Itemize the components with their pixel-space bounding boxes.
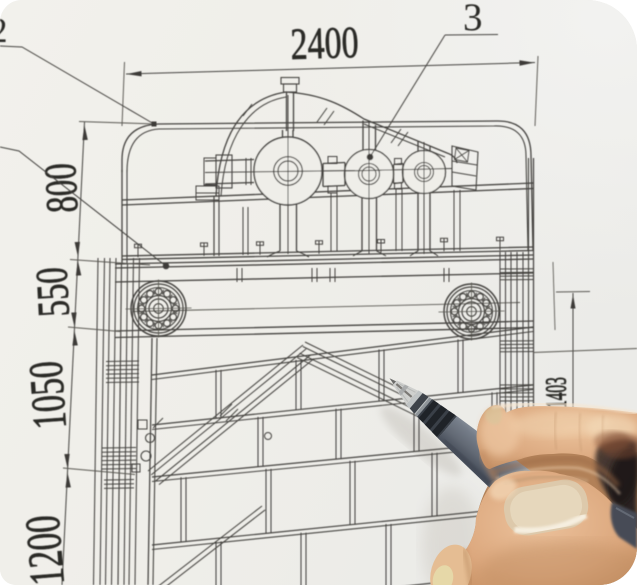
svg-text:2: 2 xyxy=(0,11,8,50)
svg-text:1050: 1050 xyxy=(20,359,78,431)
svg-text:3: 3 xyxy=(463,0,483,39)
svg-text:1200: 1200 xyxy=(16,513,76,585)
svg-text:550: 550 xyxy=(26,266,79,318)
svg-text:2400: 2400 xyxy=(290,17,359,69)
